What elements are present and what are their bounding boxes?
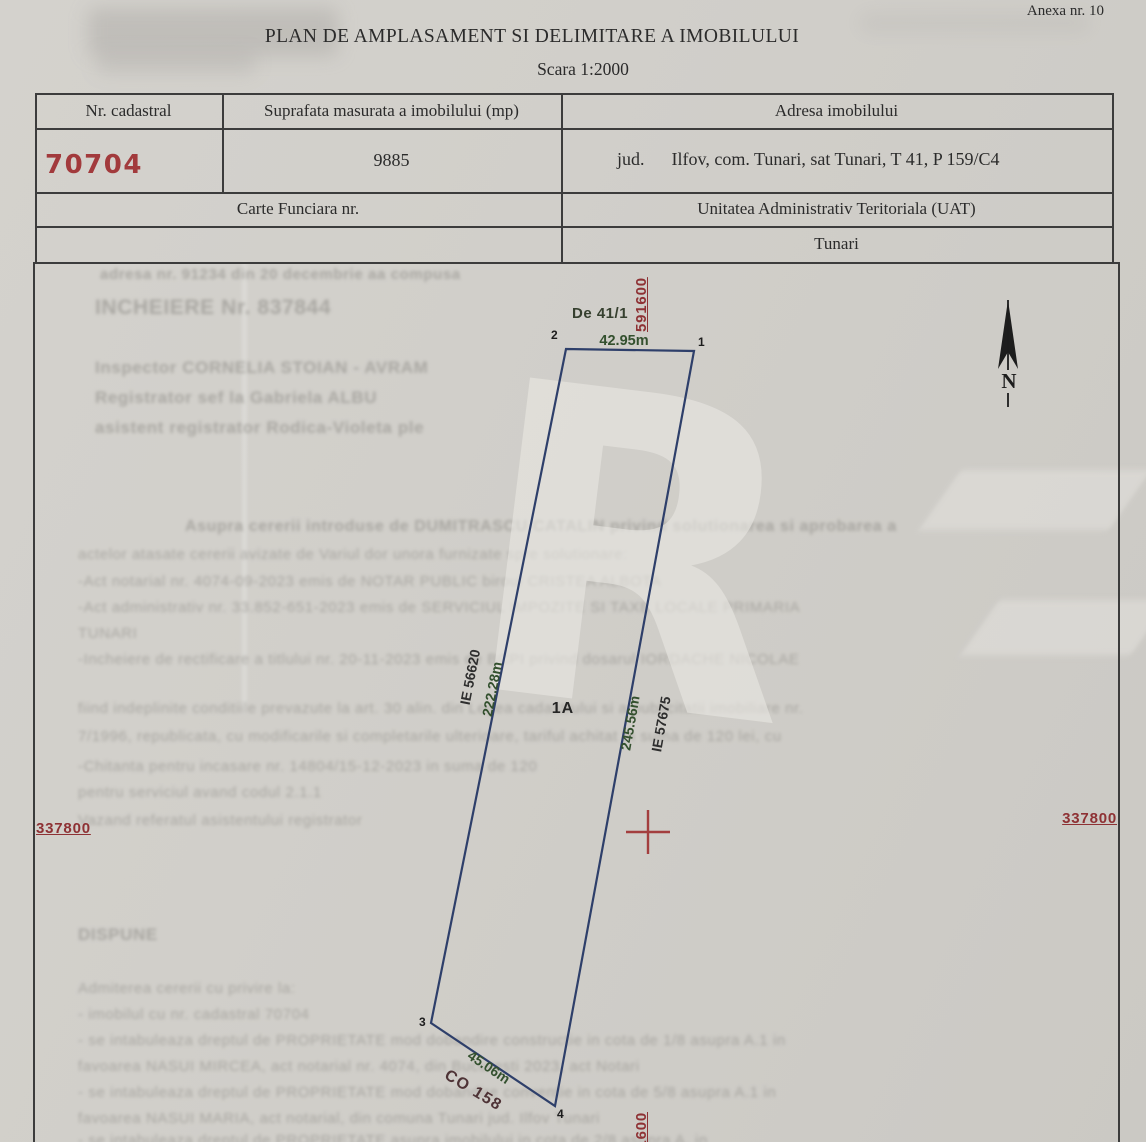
vertex-label-1: 1 xyxy=(698,335,705,349)
road-label: De 41/1 xyxy=(572,305,628,322)
scanned-cadastral-plan-page: adresa nr. 91234 din 20 decembrie aa com… xyxy=(0,0,1146,1142)
grid-coordinate-top: 591600 xyxy=(633,277,650,332)
vertex-label-2: 2 xyxy=(551,328,558,342)
north-letter: N xyxy=(998,369,1020,394)
vertex-label-3: 3 xyxy=(419,1015,426,1029)
grid-coordinate-bottom: 591600 xyxy=(633,1112,650,1142)
vertex-label-4: 4 xyxy=(557,1107,564,1121)
plan-drawing xyxy=(0,0,1146,1142)
length-top-label: 42.95m xyxy=(599,333,648,349)
grid-coordinate-right: 337800 xyxy=(1062,810,1117,827)
crosshair-marker xyxy=(626,810,670,854)
parcel-label: 1A xyxy=(552,700,574,718)
grid-coordinate-left: 337800 xyxy=(36,820,91,837)
